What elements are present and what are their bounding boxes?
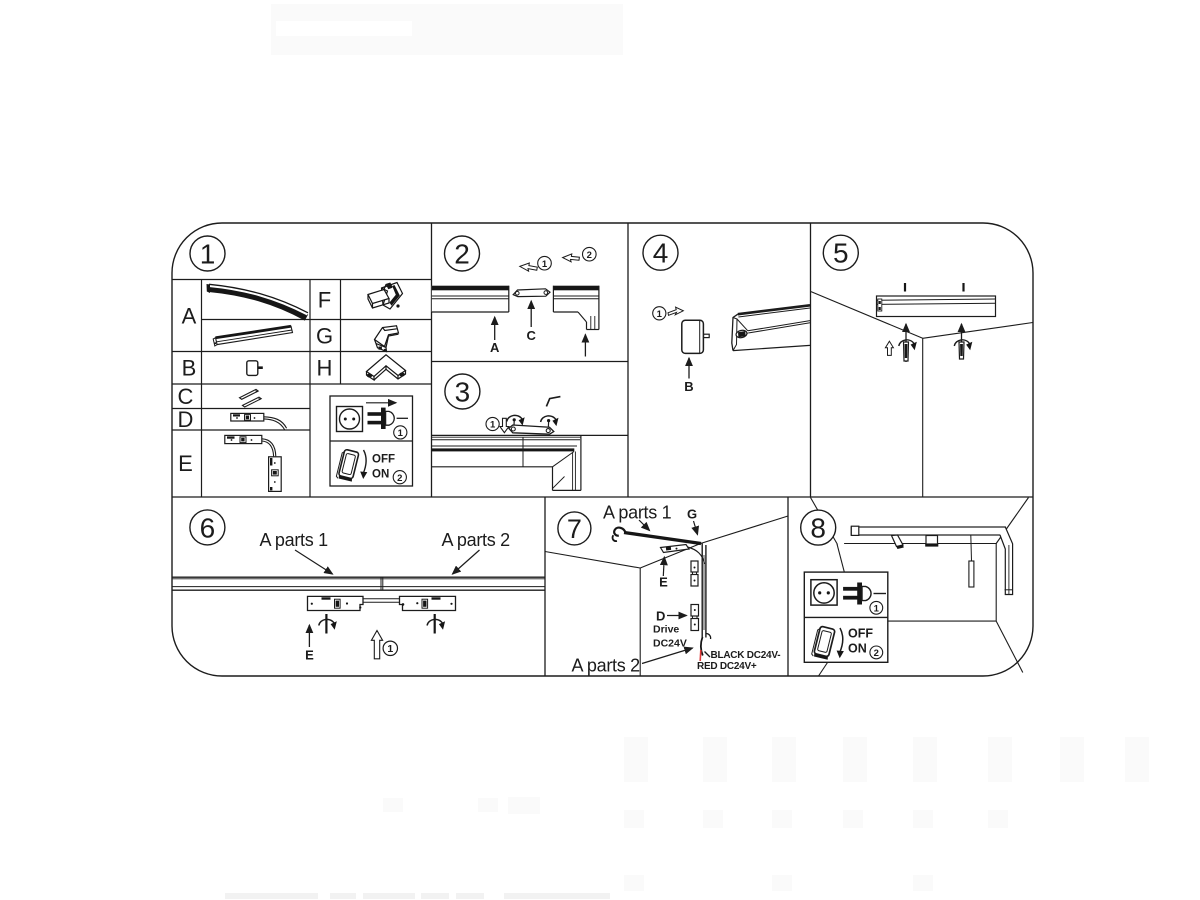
svg-text:4: 4 xyxy=(653,238,669,269)
svg-text:E: E xyxy=(178,451,193,476)
svg-text:7: 7 xyxy=(567,514,582,544)
svg-text:E: E xyxy=(305,648,314,663)
svg-text:ON: ON xyxy=(372,469,389,481)
svg-text:A parts 2: A parts 2 xyxy=(442,530,511,550)
svg-text:B: B xyxy=(182,356,197,381)
svg-text:2: 2 xyxy=(874,648,879,659)
svg-text:C: C xyxy=(178,384,194,409)
svg-text:G: G xyxy=(687,507,697,522)
svg-text:1: 1 xyxy=(200,239,216,270)
svg-text:H: H xyxy=(317,356,333,381)
svg-text:1: 1 xyxy=(398,428,404,439)
svg-text:A parts 2: A parts 2 xyxy=(572,656,641,676)
svg-text:Drive: Drive xyxy=(653,624,679,636)
svg-text:OFF: OFF xyxy=(848,627,873,641)
svg-text:1: 1 xyxy=(874,603,880,614)
svg-text:B: B xyxy=(684,379,693,394)
svg-text:2: 2 xyxy=(397,473,402,484)
svg-text:F: F xyxy=(318,288,331,313)
svg-text:A: A xyxy=(182,304,197,329)
svg-text:C: C xyxy=(527,328,537,343)
svg-text:BLACK DC24V-: BLACK DC24V- xyxy=(711,650,781,661)
svg-text:5: 5 xyxy=(833,238,849,269)
svg-text:2: 2 xyxy=(587,250,592,261)
svg-text:A parts 1: A parts 1 xyxy=(260,530,329,550)
svg-text:3: 3 xyxy=(455,377,471,408)
svg-text:D: D xyxy=(656,609,665,624)
svg-text:DC24V: DC24V xyxy=(653,638,687,650)
svg-text:RED DC24V+: RED DC24V+ xyxy=(697,661,757,672)
svg-text:8: 8 xyxy=(810,513,826,544)
svg-text:6: 6 xyxy=(200,512,216,543)
svg-text:1: 1 xyxy=(542,259,548,270)
svg-text:OFF: OFF xyxy=(372,454,395,466)
svg-text:2: 2 xyxy=(454,239,470,270)
svg-text:E: E xyxy=(659,575,668,590)
svg-text:1: 1 xyxy=(657,309,663,320)
svg-text:ON: ON xyxy=(848,642,867,656)
svg-text:G: G xyxy=(316,324,333,349)
svg-text:1: 1 xyxy=(387,643,393,655)
svg-text:A parts 1: A parts 1 xyxy=(603,503,672,523)
svg-text:D: D xyxy=(178,407,194,432)
svg-text:A: A xyxy=(490,340,500,355)
svg-text:1: 1 xyxy=(490,420,496,431)
